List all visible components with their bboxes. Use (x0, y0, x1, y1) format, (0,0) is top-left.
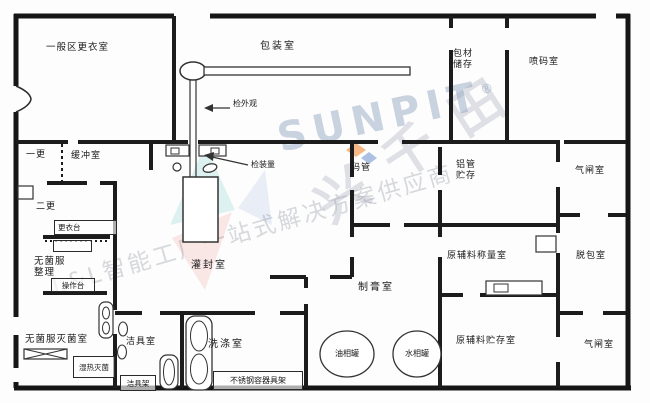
conveyor-belt (204, 67, 410, 75)
bench-box (53, 240, 92, 252)
washing-station-bowl (191, 354, 208, 384)
logo-shard-blue (238, 170, 272, 225)
label-water-tank: 水相罐 (405, 349, 429, 359)
room-label-raw-storage: 原辅料贮存室 (456, 336, 516, 347)
operation-table-box: 操作台 (51, 278, 95, 292)
check-appearance-arrow-icon (204, 104, 230, 112)
room-label-buffer: 缓冲室 (71, 151, 101, 162)
room-label-tube-coding: 码管 (351, 163, 371, 174)
weighing-table (536, 236, 556, 252)
room-label-depacking: 脱包室 (576, 251, 606, 262)
conveyor-wheel-icon (180, 62, 206, 80)
room-label-sterile-sterilizing: 无菌服灭菌室 (25, 334, 88, 345)
room-label-packmat-storage: 包材储存 (453, 49, 475, 71)
annotation-check-appearance: 检外观 (233, 99, 257, 109)
room-label-change1: 一更 (26, 150, 46, 161)
gauge-dot (173, 163, 181, 171)
control-box-left-button (171, 148, 179, 154)
room-label-filling-sealing: 灌封室 (191, 260, 227, 272)
logo-diamond-orange (346, 143, 366, 157)
door-arc-icon (16, 86, 31, 112)
conveyor-drop-line (190, 80, 196, 177)
room-label-sterile-sorting: 无菌服整理 (34, 256, 70, 279)
cleaning-rack-box: 洁具架 (120, 375, 156, 391)
weighing-scale (494, 284, 508, 292)
room-label-raw-weighing: 原辅料称量室 (447, 251, 507, 262)
wash-basin-bowl (164, 359, 175, 385)
steel-container-rack-box: 不锈钢容器具架 (213, 371, 303, 390)
room-label-packaging: 包装室 (260, 41, 296, 53)
factory-floorplan: SUNPIT® 兴千田 L&L智能工厂一站式解决方案供应商 (0, 0, 650, 403)
room-label-cleaning-tools: 洁具室 (126, 337, 156, 348)
crossed-table-icon (24, 349, 67, 359)
label-oil-tank: 油相罐 (335, 349, 359, 359)
room-label-change2: 二更 (36, 202, 56, 213)
room-label-washing: 洗涤室 (208, 339, 244, 351)
room-label-inkjet: 喷码室 (529, 57, 559, 68)
room-label-general-changing: 一般区更衣室 (46, 42, 109, 53)
annotation-check-fill: 检装量 (251, 160, 275, 170)
sink-bowl (103, 307, 110, 319)
bucket-icon (119, 322, 128, 336)
wall-cabinet (18, 186, 33, 199)
sink-bowl (103, 322, 110, 334)
room-label-cream-making: 制膏室 (358, 282, 394, 294)
room-label-airlock-bottom: 气闸室 (584, 340, 614, 351)
changing-table-box: 更衣台 (54, 220, 117, 235)
moist-heat-sterilizer-box: 湿热灭菌 (73, 356, 115, 378)
room-label-alu-storage: 铝管贮存 (456, 160, 480, 182)
filling-machine (183, 177, 218, 242)
washing-station-bowl (191, 321, 208, 351)
room-label-airlock-top: 气闸室 (575, 166, 605, 177)
